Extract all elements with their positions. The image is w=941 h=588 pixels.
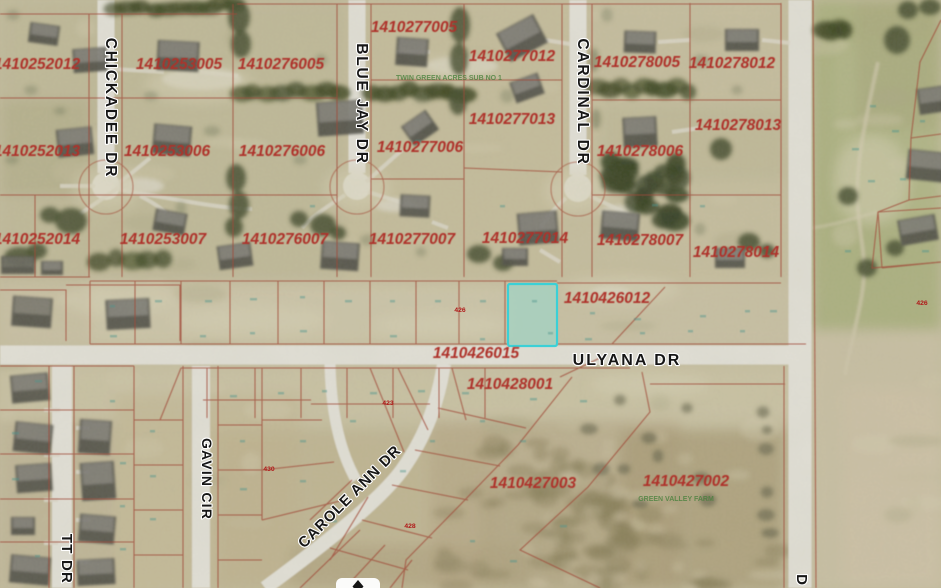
svg-text:423: 423 <box>382 400 394 407</box>
svg-text:426: 426 <box>916 300 928 307</box>
svg-text:1410277006: 1410277006 <box>377 139 464 156</box>
svg-text:1410278007: 1410278007 <box>597 232 685 249</box>
svg-text:1410278012: 1410278012 <box>689 55 776 72</box>
svg-text:1410252012: 1410252012 <box>0 56 80 73</box>
svg-text:BLUE JAY DR: BLUE JAY DR <box>353 43 370 164</box>
svg-text:GREEN VALLEY FARM: GREEN VALLEY FARM <box>638 496 714 503</box>
svg-text:1410427002: 1410427002 <box>643 473 730 490</box>
svg-text:1410277013: 1410277013 <box>469 111 556 128</box>
svg-text:CHICKADEE DR: CHICKADEE DR <box>102 38 119 178</box>
svg-text:430: 430 <box>263 466 275 473</box>
svg-text:1410253007: 1410253007 <box>120 231 208 248</box>
svg-text:428: 428 <box>404 523 416 530</box>
svg-text:1410278014: 1410278014 <box>693 244 780 261</box>
svg-text:1410276007: 1410276007 <box>242 231 330 248</box>
svg-text:TWIN GREEN ACRES SUB NO 1: TWIN GREEN ACRES SUB NO 1 <box>396 75 502 82</box>
svg-text:1410253005: 1410253005 <box>136 56 223 73</box>
svg-text:1410277005: 1410277005 <box>371 19 458 36</box>
svg-text:GAVIN CIR: GAVIN CIR <box>199 438 215 520</box>
svg-text:1410278005: 1410278005 <box>594 54 681 71</box>
svg-text:1410278006: 1410278006 <box>597 143 684 160</box>
svg-text:TT DR: TT DR <box>58 534 75 584</box>
svg-text:1410253006: 1410253006 <box>124 143 211 160</box>
svg-text:1410427003: 1410427003 <box>490 475 577 492</box>
svg-text:D: D <box>793 574 810 586</box>
svg-text:1410252013: 1410252013 <box>0 143 80 160</box>
svg-text:1410426015: 1410426015 <box>433 345 520 362</box>
svg-text:1410276006: 1410276006 <box>239 143 326 160</box>
svg-text:1410278013: 1410278013 <box>695 117 782 134</box>
svg-text:1410428001: 1410428001 <box>467 376 553 393</box>
svg-text:1410276005: 1410276005 <box>238 56 325 73</box>
svg-text:1410277012: 1410277012 <box>469 48 556 65</box>
svg-text:1410277007: 1410277007 <box>369 231 457 248</box>
svg-text:1410426012: 1410426012 <box>564 290 651 307</box>
svg-text:CARDINAL DR: CARDINAL DR <box>574 38 591 165</box>
svg-text:1410252014: 1410252014 <box>0 231 80 248</box>
svg-text:ULYANA DR: ULYANA DR <box>573 352 682 369</box>
svg-text:426: 426 <box>454 307 466 314</box>
svg-text:1410277014: 1410277014 <box>482 230 569 247</box>
